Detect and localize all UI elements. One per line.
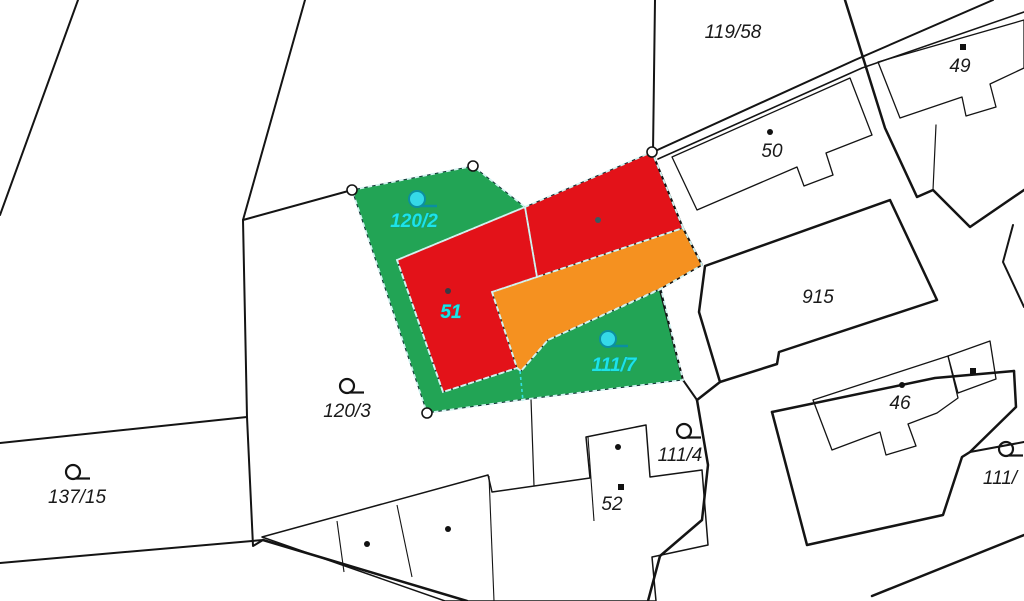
building-point [899,382,905,388]
building-point [767,129,773,135]
parcel-label-137-15: 137/15 [48,487,107,508]
parcel-label-120-2: 120/2 [390,211,438,232]
land-use-symbol-selected-icon [409,191,425,207]
parcel-vertex-marker [422,408,432,418]
parcel-label-46: 46 [889,393,911,414]
parcel-label-111-7: 111/7 [592,355,638,376]
parcel-label-119-58: 119/58 [705,22,762,43]
building-point [445,526,451,532]
parcel-vertex-marker [647,147,657,157]
parcel-vertex-marker [347,185,357,195]
parcel-label-51: 51 [440,302,461,323]
building-point [595,217,601,223]
building-point [618,484,624,490]
building-point [970,368,976,374]
land-use-symbol-selected-icon [600,331,616,347]
parcel-label-111-cut: 111/ [983,468,1019,489]
building-point [445,288,451,294]
parcel-label-50: 50 [761,141,783,162]
parcel-label-49: 49 [949,56,971,77]
building-point [615,444,621,450]
parcel-label-915: 915 [802,287,834,308]
parcel-label-120-3: 120/3 [323,401,371,422]
building-point [364,541,370,547]
parcel-vertex-marker [468,161,478,171]
cadastral-map-canvas[interactable]: 119/58495091546120/3137/15111/452111/120… [0,0,1024,601]
building-point [960,44,966,50]
parcel-label-111-4: 111/4 [658,445,703,466]
map-viewport[interactable]: 119/58495091546120/3137/15111/452111/120… [0,0,1024,601]
parcel-label-52: 52 [601,494,623,515]
